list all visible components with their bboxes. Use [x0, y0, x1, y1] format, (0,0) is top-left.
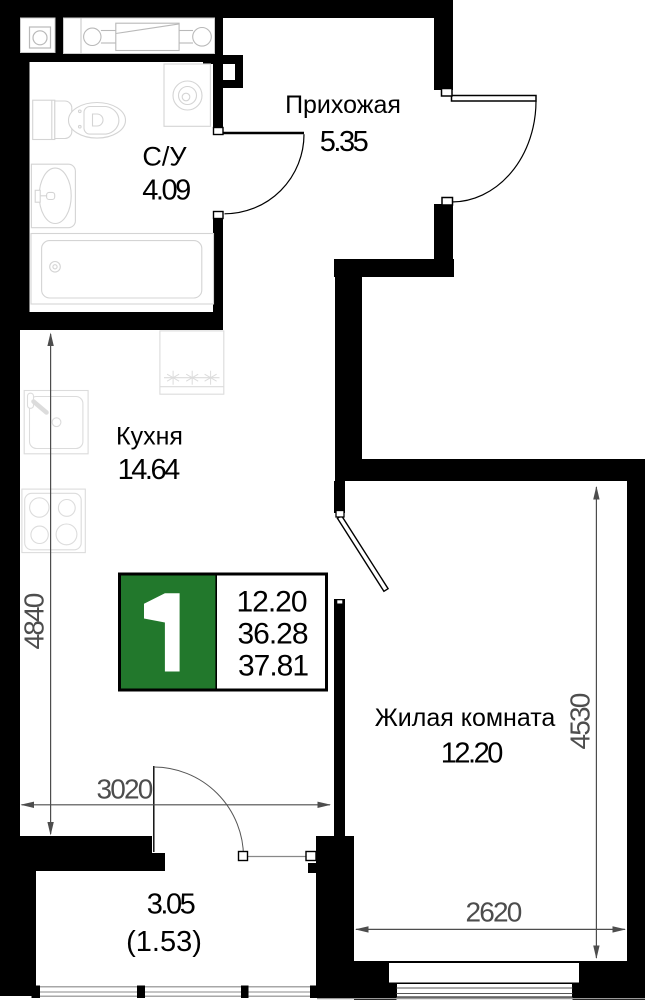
svg-text:(1.53): (1.53) — [126, 926, 202, 958]
svg-text:3020: 3020 — [96, 774, 152, 805]
svg-text:Прихожая: Прихожая — [285, 91, 401, 119]
svg-text:37.81: 37.81 — [238, 650, 308, 683]
svg-text:4530: 4530 — [565, 693, 596, 749]
svg-text:14.64: 14.64 — [118, 454, 180, 486]
svg-text:Кухня: Кухня — [116, 422, 183, 450]
svg-text:5.35: 5.35 — [320, 126, 368, 158]
svg-text:12.20: 12.20 — [236, 586, 306, 619]
svg-text:36.28: 36.28 — [237, 618, 307, 651]
svg-text:4.09: 4.09 — [142, 175, 190, 207]
svg-text:4840: 4840 — [19, 593, 50, 649]
svg-text:2620: 2620 — [465, 897, 521, 928]
svg-text:12.20: 12.20 — [441, 737, 502, 769]
svg-text:Жилая комната: Жилая комната — [375, 704, 556, 732]
svg-text:3.05: 3.05 — [147, 889, 195, 921]
svg-text:С/У: С/У — [142, 142, 187, 172]
